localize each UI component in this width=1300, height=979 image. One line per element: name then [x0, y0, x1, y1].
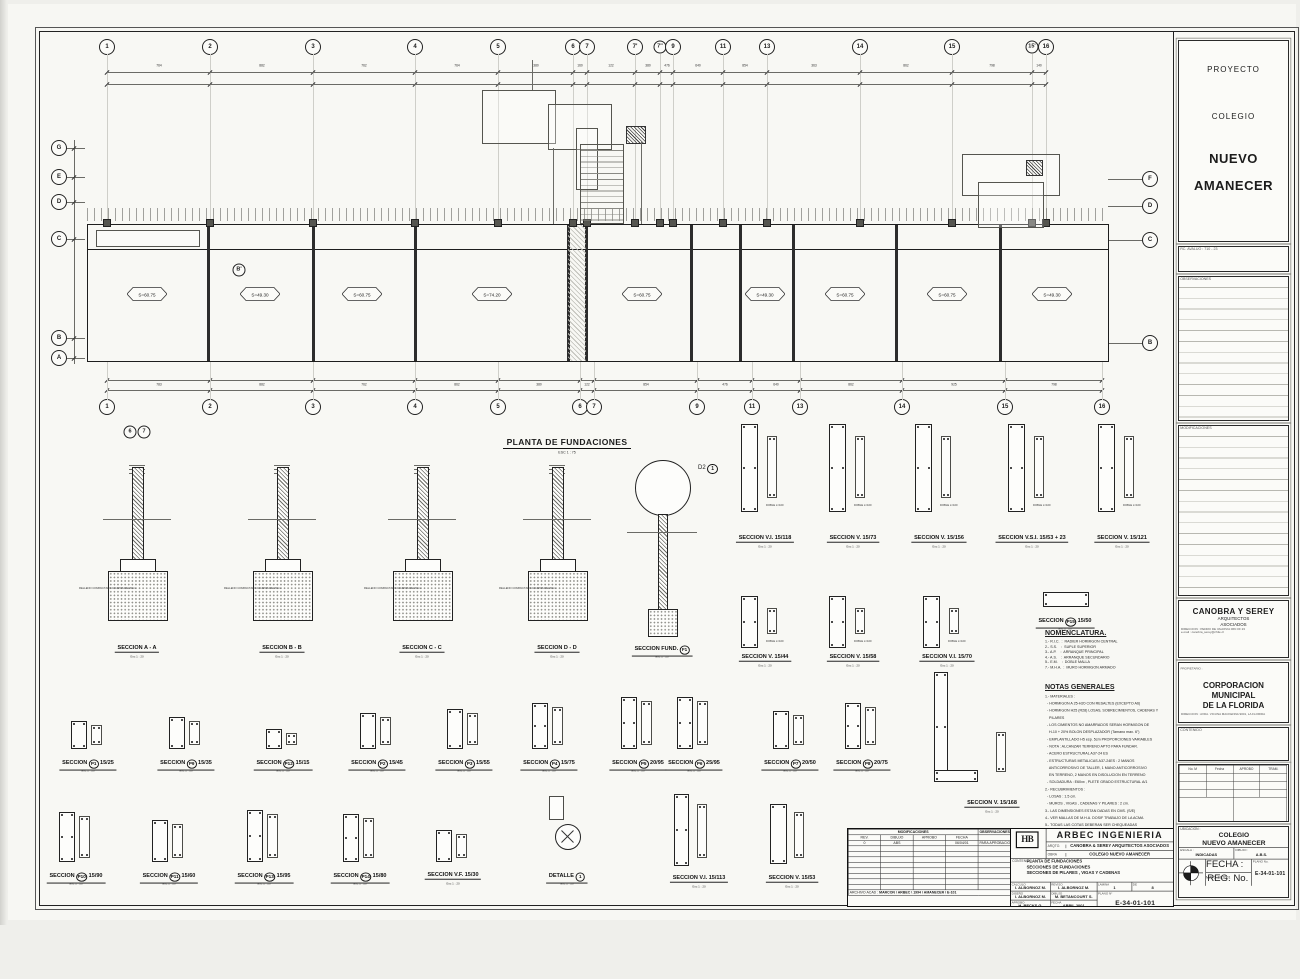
rebar-dot	[743, 508, 745, 510]
v-section-label: SECCION V.S.I. 15/53 + 23	[996, 535, 1069, 542]
grid-bubble: 14	[852, 39, 868, 55]
pilar-label: SECCION V.F. 15/30	[425, 872, 482, 879]
dim-number: 862	[848, 383, 854, 386]
rebar-dot	[438, 858, 440, 860]
grid-bubble: 9	[689, 399, 705, 415]
interior-wall	[690, 225, 693, 361]
rebar-dot	[1100, 467, 1102, 469]
v-section-label: SECCION V. 15/58	[827, 654, 879, 661]
plano-label: PLANO N°	[1098, 892, 1112, 896]
rebar-dot	[685, 862, 687, 864]
section-scale: Esc 1 : 20	[655, 656, 668, 659]
v-section-companion	[855, 608, 865, 634]
v-section-companion	[941, 436, 951, 498]
ground-line	[103, 519, 171, 520]
column-square	[656, 219, 664, 227]
fecha-label: FECHA :	[1206, 859, 1243, 869]
section-id-bubble: P9	[187, 759, 197, 768]
dim-number: 380	[533, 64, 539, 67]
grid-bubble: E	[51, 169, 67, 185]
rebar-dot	[459, 745, 461, 747]
rebar-dot	[689, 745, 691, 747]
section-scale: Esc 1 : 20	[275, 656, 288, 659]
rebar-dot	[534, 705, 536, 707]
rebar-dot	[947, 494, 949, 496]
pilar-companion	[363, 818, 374, 858]
grid-bubble: 3	[305, 399, 321, 415]
field-value: I. ALBORNOZ M.	[1051, 886, 1097, 890]
rebar-dot	[1021, 467, 1023, 469]
rebar-dot	[623, 745, 625, 747]
section-label-text: DETALLE	[549, 873, 576, 879]
rebar-dot	[796, 854, 798, 856]
column-square	[856, 219, 864, 227]
rebar-note: DOBLE L=100	[766, 640, 783, 643]
modificaciones-box: MODIFICACIONES	[1178, 425, 1289, 596]
plano-no-value: E-34-01-101	[1252, 870, 1289, 876]
approval-empty-cell	[1179, 773, 1206, 781]
rebar-dot	[861, 494, 863, 496]
rebar-dot	[448, 832, 450, 834]
section-scale: Esc 1 : 20	[940, 665, 953, 668]
rebar-dot	[249, 835, 251, 837]
pilar-main	[59, 812, 75, 862]
rebar-dot	[171, 719, 173, 721]
obra-label: OBRA	[1046, 853, 1066, 857]
project-nuevo: NUEVO	[1179, 151, 1288, 166]
v-section-companion	[949, 608, 959, 634]
architects-sub: ASOCIADOS	[1190, 623, 1277, 628]
rebar-dot	[278, 731, 280, 733]
footing-note: RELLENO COMPACTADO C/CAPAS DE 20cm	[364, 587, 405, 590]
pilar-main	[71, 721, 87, 749]
rebar-dot	[1045, 603, 1047, 605]
rebar-dot	[936, 726, 938, 728]
archivo-value: MARCON \ ARBEC \ 1994 \ AMANECER \ E-101	[879, 891, 956, 895]
architects-sub: ARQUITECTOS	[1190, 617, 1277, 622]
svg-text:S=60.75: S=60.75	[633, 292, 651, 297]
rebar-dot	[847, 745, 849, 747]
grid-leader	[1108, 206, 1142, 207]
rebar-dot	[623, 699, 625, 701]
nota-item: - LOS CIMIENTOS NO AMARRADOS SERAN HORMI…	[1045, 722, 1174, 729]
rebar-dot	[944, 674, 946, 676]
grid-stub	[210, 362, 211, 400]
detail-grid-bubble: 6	[124, 426, 137, 439]
rebar-dot	[554, 741, 556, 743]
modifications-grid: MODIFICACIONES OBSERVACIONES REV. DIBUJO…	[848, 829, 1011, 896]
room-area-diamond: S=74.20	[472, 287, 512, 301]
pilar-main	[247, 810, 263, 862]
dim-number: 476	[722, 383, 728, 386]
field-label: CALCULO	[1012, 883, 1026, 887]
section-label-text: SECCION	[668, 760, 695, 766]
nomenclatura-item: 7.- M.H.A. : MURO HORMIGON ARMADO	[1045, 665, 1172, 670]
dim-number: 925	[951, 383, 957, 386]
rebar-dot	[534, 745, 536, 747]
plano-no-label: PLANO No.	[1253, 860, 1269, 864]
grid-line	[660, 54, 661, 224]
section-label-text: 20/75	[873, 760, 888, 766]
rebar-dot	[544, 705, 546, 707]
rebar-dot	[274, 854, 276, 856]
rebar-dot	[769, 630, 771, 632]
rebar-dot	[775, 745, 777, 747]
grid-bubble: 7'	[627, 39, 643, 55]
footing-note: RELLENO COMPACTADO C/CAPAS DE 20cm	[224, 587, 265, 590]
arqto-label: ARQTO.	[1046, 844, 1066, 848]
rebar-dot	[1085, 594, 1087, 596]
nota-item: - MUROS , VIGAS , CADENAS Y PILARES : 2 …	[1045, 800, 1174, 807]
nota-item: 4.- VER MALLAS DE M.H.A. DOSIF TRABAJO D…	[1045, 815, 1174, 822]
section-id-bubble: F1	[680, 645, 690, 654]
grid-bubble: 15	[944, 39, 960, 55]
grid-bubble: 14	[894, 399, 910, 415]
rebar-dot	[785, 713, 787, 715]
approval-empty-cell	[1206, 789, 1233, 797]
rebar-dot	[345, 858, 347, 860]
rebar-dot	[269, 816, 271, 818]
ground-line	[523, 519, 591, 520]
dim-number: 363	[811, 64, 817, 67]
rebar-dot	[754, 621, 756, 623]
nota-item: 2.- RECUBRIMIENTOS :	[1045, 786, 1174, 793]
rebar-dot	[857, 438, 859, 440]
field-label: REVISO	[1051, 883, 1062, 887]
section-scale: Esc 1 : 20	[758, 665, 771, 668]
grid-stub	[1005, 362, 1006, 400]
column-square	[948, 219, 956, 227]
grid-stub	[580, 362, 581, 400]
rebar-dot	[154, 822, 156, 824]
rebar-dot	[679, 699, 681, 701]
approval-empty-cell	[1260, 789, 1287, 797]
rebar-dot	[773, 610, 775, 612]
pilar-companion	[456, 834, 467, 858]
rebar-dot	[179, 854, 181, 856]
owner-line: MUNICIPAL	[1179, 691, 1288, 701]
footing-note: RELLENO COMPACTADO C/CAPAS DE 20cm	[79, 587, 120, 590]
dim-number: 122	[584, 383, 590, 386]
rebar-dot	[1002, 768, 1004, 770]
footing-label: SECCION A - A	[115, 645, 159, 652]
section-id-bubble: P2	[378, 759, 388, 768]
rebar-dot	[689, 699, 691, 701]
dim-number: 862	[903, 64, 909, 67]
rebar-dot	[773, 438, 775, 440]
rebar-dot	[288, 735, 290, 737]
column-square	[411, 219, 419, 227]
detalle-pipe	[549, 796, 564, 820]
rebar-note: DOBLE L=100	[854, 504, 871, 507]
rebar-dot	[1010, 426, 1012, 428]
sheet-inner-frame: PLANTA DE FUNDACIONES ESC 1 : 75 NOMENCL…	[39, 31, 1295, 906]
field-label: LAMINA	[1098, 883, 1109, 887]
rebar-dot	[785, 745, 787, 747]
rebar-dot	[842, 644, 844, 646]
interior-wall	[895, 225, 898, 361]
footing-base	[253, 571, 313, 621]
rebar-dot	[382, 741, 384, 743]
rebar-dot	[365, 820, 367, 822]
owner-line: CORPORACION	[1179, 681, 1288, 691]
section-id-bubble: P14	[360, 872, 371, 881]
pilar-main	[621, 697, 637, 749]
pilar-main	[677, 697, 693, 749]
section-id-bubble: P13	[264, 872, 275, 881]
annex-line	[553, 148, 554, 224]
rebar-dot	[917, 508, 919, 510]
rebar-dot	[800, 854, 802, 856]
pilar-main	[343, 814, 359, 862]
rebar-dot	[754, 467, 756, 469]
rebar-dot	[769, 494, 771, 496]
field-label: DISEÑO	[1012, 892, 1024, 896]
rebar-dot	[554, 709, 556, 711]
rebar-dot	[773, 630, 775, 632]
rebar-dot	[679, 722, 681, 724]
rebar-dot	[783, 806, 785, 808]
grid-bubble: 16	[1038, 39, 1054, 55]
grid-stub	[594, 362, 595, 400]
v-section-label: SECCION V. 15/121	[1094, 535, 1149, 542]
section-scale: Esc 1 : 20	[457, 770, 470, 773]
rebar-dot	[268, 745, 270, 747]
approval-header: APROBO	[1233, 765, 1260, 773]
grid-bubble: 7	[579, 39, 595, 55]
v-section-main	[829, 424, 846, 512]
footing-base	[108, 571, 168, 621]
footing-base	[393, 571, 453, 621]
rebar-dot	[795, 741, 797, 743]
grid-stub	[752, 362, 753, 400]
grid-bubble: A	[51, 350, 67, 366]
v-section-main	[741, 424, 758, 512]
rebar-dot	[857, 610, 859, 612]
section-label-text: 15/25	[99, 760, 114, 766]
nota-item: - LOSAS : 1.5 cm.	[1045, 793, 1174, 800]
rebar-dot	[71, 858, 73, 860]
pilar-main	[845, 703, 861, 749]
bot-dim-line-1	[107, 380, 1102, 381]
dim-number: 380	[536, 383, 542, 386]
notas-list: 1.- MATERIALES : - HORMIGON A 25-H20 CON…	[1045, 693, 1174, 850]
room-area-diamond: S=60.75	[927, 287, 967, 301]
rebar-dot	[559, 709, 561, 711]
left-dim-chain	[74, 140, 75, 364]
plan-title-block: PLANTA DE FUNDACIONES ESC 1 : 75	[482, 432, 652, 456]
approval-header: Fecha	[1206, 765, 1233, 773]
approval-empty-cell	[1233, 789, 1260, 797]
pile-stem	[658, 514, 668, 611]
field-label: APROBO	[1012, 901, 1025, 905]
grid-bubble: 1	[99, 39, 115, 55]
rebar-dot	[1111, 426, 1113, 428]
rebar-dot	[293, 735, 295, 737]
rebar-dot	[842, 467, 844, 469]
pilar-main	[532, 703, 548, 749]
rebar-dot	[936, 674, 938, 676]
section-label-text: SECCION	[160, 760, 187, 766]
section-id-bubble: P4	[550, 759, 560, 768]
rebar-dot	[1045, 594, 1047, 596]
section-scale: Esc 1 : 20	[446, 883, 459, 886]
grid-stub	[800, 362, 801, 400]
section-scale: Esc 1 : 20	[162, 883, 175, 886]
rebar-dot	[917, 426, 919, 428]
detail-callout: D2 1	[698, 464, 718, 474]
d2-label: D2	[698, 465, 706, 471]
column-square	[569, 219, 577, 227]
bot-dim-line-2	[107, 390, 1102, 391]
svg-text:S=60.75: S=60.75	[938, 292, 956, 297]
rebar-dot	[861, 438, 863, 440]
section-label-text: 25/95	[705, 760, 720, 766]
rebar-dot	[382, 719, 384, 721]
rebar-dot	[648, 703, 650, 705]
section-scale: Esc 1 : 20	[846, 665, 859, 668]
dibujo-label: DIBUJO :	[1235, 849, 1248, 853]
owner-address: DIRECCION : AVDA. VICUNA MACKENNA 9001, …	[1181, 713, 1286, 716]
rebar-dot	[679, 745, 681, 747]
grid-leader	[67, 338, 85, 339]
nota-item: - SOLDADURA : E60xx , PLETE GRADO ESTRUC…	[1045, 779, 1174, 786]
rebar-dot	[872, 709, 874, 711]
field-label: DIBUJO	[1051, 892, 1062, 896]
room-area-diamond: S=60.75	[622, 287, 662, 301]
room-area-diamond: S=60.75	[825, 287, 865, 301]
v-section-companion	[767, 436, 777, 498]
rebar-dot	[800, 717, 802, 719]
grid-bubble: 3	[305, 39, 321, 55]
rebar-dot	[1126, 494, 1128, 496]
rebar-dot	[743, 644, 745, 646]
company-logo: HB	[1016, 831, 1039, 848]
annex-structure	[482, 90, 556, 144]
section-label-text: SECCION	[62, 760, 89, 766]
rebar-note: DOBLE L=100	[1123, 504, 1140, 507]
grid-bubble: 11	[744, 399, 760, 415]
rebar-dot	[181, 719, 183, 721]
svg-text:S=49.30: S=49.30	[756, 292, 774, 297]
section-scale: Esc 1 : 20	[1025, 546, 1038, 549]
rebar-dot	[831, 644, 833, 646]
rebar-dot	[754, 426, 756, 428]
footing-stem	[417, 467, 429, 561]
rebar-dot	[800, 741, 802, 743]
grid-line	[860, 54, 861, 224]
approval-header: TRAM.	[1260, 765, 1287, 773]
rebar-dot	[676, 829, 678, 831]
grid-line	[723, 54, 724, 224]
grid-bubble: C	[51, 231, 67, 247]
section-label-text: SECCION	[438, 760, 465, 766]
stair-detail	[580, 144, 624, 224]
field-value: 8	[1132, 886, 1173, 890]
section-scale: Esc 1 : 20	[932, 546, 945, 549]
rebar-dot	[61, 858, 63, 860]
svg-text:S=60.75: S=60.75	[138, 292, 156, 297]
rebar-dot	[362, 745, 364, 747]
section-scale: Esc 1 : 20	[81, 770, 94, 773]
dim-number: 640	[773, 383, 779, 386]
rebar-dot	[936, 778, 938, 780]
rebar-dot	[268, 731, 270, 733]
grid-bubble: B	[51, 330, 67, 346]
rebar-dot	[469, 741, 471, 743]
section-label-text: SECCION	[1038, 618, 1065, 624]
section-id-bubble: P12	[283, 759, 294, 768]
section-scale: Esc 1 : 20	[631, 770, 644, 773]
dim-number: 762	[361, 383, 367, 386]
company-name: ARBEC INGENIERIA	[1046, 829, 1173, 842]
rebar-dot	[872, 741, 874, 743]
id-bottom-row: FECHA : MAYO 19 2001 REG. No. PLANO No. …	[1179, 859, 1289, 886]
grid-leader	[67, 148, 85, 149]
grid-leader	[1108, 343, 1142, 344]
rebar-dot	[81, 854, 83, 856]
drawing-area: PLANTA DE FUNDACIONES ESC 1 : 75 NOMENCL…	[40, 32, 1172, 905]
rebar-dot	[387, 719, 389, 721]
svg-text:S=49.30: S=49.30	[1043, 292, 1061, 297]
pilar-companion	[267, 814, 278, 858]
section-id-bubble: 1	[575, 872, 585, 881]
grid-leader	[67, 358, 85, 359]
arqto-value: CANOBRA & SEREY ARQUITECTOS ASOCIADOS	[1066, 844, 1173, 848]
rebar-dot	[936, 772, 938, 774]
nota-item: H-10 + 20% BOLON DESPLAZADOR (Tamano max…	[1045, 729, 1174, 736]
rebar-dot	[998, 768, 1000, 770]
contenido-line: SECCIONES DE PILARES , VIGAS Y CADENAS	[1027, 870, 1173, 876]
rebar-dot	[943, 494, 945, 496]
rebar-dot	[743, 467, 745, 469]
pilar-companion	[286, 733, 297, 745]
rebar-dot	[643, 703, 645, 705]
section-label-text: 15/45	[388, 760, 403, 766]
escala-label: ESCALA :	[1180, 849, 1193, 853]
section-label-text: SECCION FUND.	[635, 646, 680, 652]
room-area-diamond: S=49.30	[1032, 287, 1072, 301]
pilar-companion	[91, 725, 102, 745]
nomenclatura-list: 1.- R.I.C. : RADIER HORMIGON CENTRAL2.- …	[1045, 639, 1172, 670]
rebar-dot	[1040, 438, 1042, 440]
annex-line	[532, 60, 533, 90]
rebar-dot	[1021, 508, 1023, 510]
field-value: I. ALBORNOZ M.	[1011, 895, 1050, 899]
rebar-dot	[842, 598, 844, 600]
dim-number: 762	[361, 64, 367, 67]
rebar-dot	[754, 598, 756, 600]
footing-base	[528, 571, 588, 621]
rebar-dot	[449, 745, 451, 747]
pilar-companion	[189, 721, 200, 745]
rebar-dot	[623, 722, 625, 724]
detail-grid-bubble: 7	[138, 426, 151, 439]
column-square	[763, 219, 771, 227]
rebar-dot	[86, 854, 88, 856]
rebar-dot	[362, 715, 364, 717]
nota-item: EN TERRENO, 2 MANOS EN DISOLUCION EN TER…	[1045, 772, 1174, 779]
v168-label: SECCION V. 15/168	[964, 800, 1019, 807]
rebar-dot	[71, 814, 73, 816]
approval-empty-cell	[1260, 781, 1287, 789]
id-colegio: COLEGIO	[1179, 832, 1289, 840]
rebar-dot	[847, 705, 849, 707]
field-value: M. BETANCOURT S.	[1051, 895, 1097, 899]
rebar-dot	[372, 715, 374, 717]
pilar-companion	[697, 701, 708, 745]
pilar-main	[360, 713, 376, 749]
